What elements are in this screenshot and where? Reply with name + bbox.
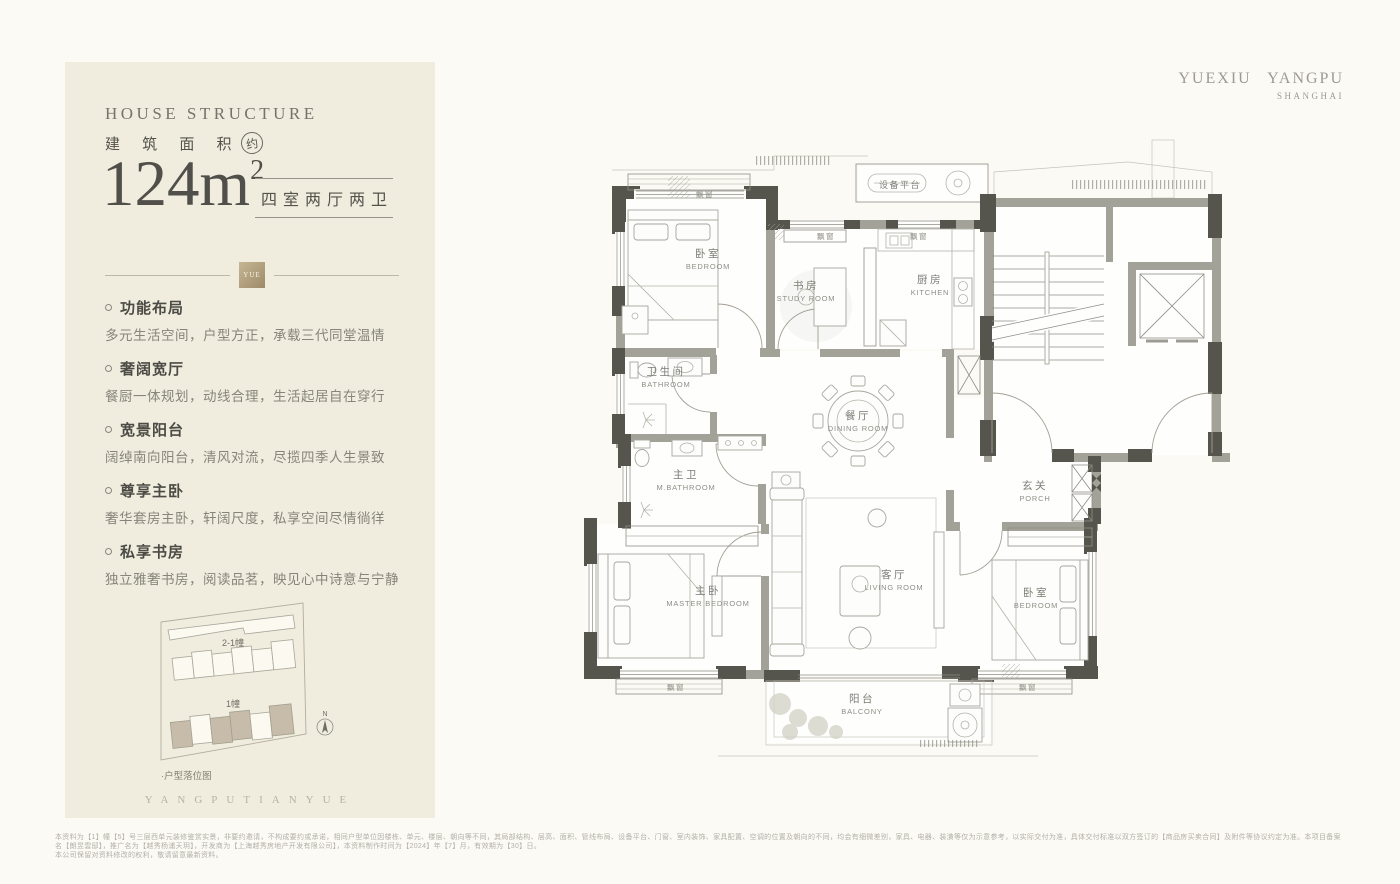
svg-text:PORCH: PORCH — [1019, 494, 1050, 503]
building-label-1: 1幢 — [226, 698, 240, 709]
feature-title: 功能布局 — [120, 300, 184, 317]
svg-text:BEDROOM: BEDROOM — [686, 262, 730, 271]
feature-desc: 独立雅奢书房，阅读品茗，映见心中诗意与宁静 — [105, 568, 415, 588]
building-row-1 — [170, 704, 295, 749]
svg-text:主卫: 主卫 — [673, 469, 699, 481]
svg-text:书房: 书房 — [793, 279, 819, 292]
svg-text:卧室: 卧室 — [695, 247, 721, 260]
brand-logo-line1: YUEXIU YANGPU — [1178, 70, 1344, 88]
floor-plan: 设备平台 — [568, 136, 1238, 786]
svg-text:卧室: 卧室 — [1023, 586, 1049, 599]
svg-text:BALCONY: BALCONY — [841, 707, 882, 716]
svg-text:DINING ROOM: DINING ROOM — [828, 424, 888, 433]
divider-line-left — [105, 275, 230, 276]
svg-text:MASTER BEDROOM: MASTER BEDROOM — [666, 599, 749, 608]
bullet-circle-icon — [105, 426, 112, 433]
bullet-circle-icon — [105, 487, 112, 494]
svg-text:厨房: 厨房 — [917, 273, 943, 286]
brand-logo: YUEXIU YANGPU SHANGHAI — [1178, 70, 1344, 101]
area-value: 124m2 — [102, 152, 264, 217]
svg-text:KITCHEN: KITCHEN — [911, 288, 950, 297]
svg-text:M.BATHROOM: M.BATHROOM — [656, 483, 715, 492]
feature-title: 奢阔宽厅 — [120, 361, 184, 378]
bullet-circle-icon — [105, 365, 112, 372]
svg-text:BATHROOM: BATHROOM — [641, 380, 690, 389]
feature-desc: 奢华套房主卧，轩阔尺度，私享空间尽情徜徉 — [105, 507, 415, 527]
equipment-platform-label: 设备平台 — [879, 179, 921, 190]
flyer-page: { "logo": { "line1": "YUEXIU YANGPU", "l… — [0, 0, 1400, 884]
feature-list: 功能布局 多元生活空间，户型方正，承载三代同堂温情 奢阔宽厅 餐厨一体规划，动线… — [105, 297, 415, 602]
feature-item: 私享书房 独立雅奢书房，阅读品茗，映见心中诗意与宁静 — [105, 541, 415, 588]
svg-text:卫生间: 卫生间 — [647, 365, 686, 378]
svg-text:玄关: 玄关 — [1022, 479, 1048, 492]
bay-window-label: 飘窗 — [817, 231, 835, 241]
feature-title: 私享书房 — [120, 544, 184, 561]
svg-text:客厅: 客厅 — [881, 568, 907, 581]
disclaimer-line1: 本资料为【1】幢【5】号三层西单元装修鉴赏实景，非要约邀请，不构成要约或承诺，相… — [55, 833, 1347, 851]
bay-window-label: 飘窗 — [667, 682, 685, 692]
bay-window-label: 飘窗 — [696, 189, 714, 199]
svg-text:主卧: 主卧 — [695, 584, 721, 597]
bullet-circle-icon — [105, 548, 112, 555]
disclaimer-line2: 本公司保留对资料修改的权利，敬请留意最新资料。 — [55, 851, 1347, 860]
svg-text:BEDROOM: BEDROOM — [1014, 601, 1058, 610]
svg-text:阳台: 阳台 — [849, 692, 875, 705]
feature-title: 宽景阳台 — [120, 422, 184, 439]
feature-desc: 餐厨一体规划，动线合理，生活起居自在穿行 — [105, 385, 415, 405]
feature-desc: 多元生活空间，户型方正，承载三代同堂温情 — [105, 324, 415, 344]
divider: YUE — [105, 262, 399, 288]
room-porch: 玄关 PORCH — [1019, 479, 1050, 503]
stair-core — [992, 252, 1104, 364]
disclaimer: 本资料为【1】幢【5】号三层西单元装修鉴赏实景，非要约邀请，不构成要约或承诺，相… — [55, 833, 1347, 860]
feature-title: 尊享主卧 — [120, 483, 184, 500]
feature-item: 奢阔宽厅 餐厨一体规划，动线合理，生活起居自在穿行 — [105, 358, 415, 405]
svg-text:STUDY ROOM: STUDY ROOM — [777, 294, 836, 303]
feature-item: 功能布局 多元生活空间，户型方正，承载三代同堂温情 — [105, 297, 415, 344]
info-panel: HOUSE STRUCTURE 建 筑 面 积 约 124m2 四室两厅两卫 Y… — [65, 62, 435, 818]
feature-desc: 阔绰南向阳台，清风对流，尽揽四季人生景致 — [105, 446, 415, 466]
bullet-circle-icon — [105, 304, 112, 311]
svg-text:LIVING ROOM: LIVING ROOM — [865, 583, 924, 592]
feature-item: 尊享主卧 奢华套房主卧，轩阔尺度，私享空间尽情徜徉 — [105, 480, 415, 527]
panel-watermark: YANGPUTIANYUE — [65, 794, 435, 806]
unit-type: 四室两厅两卫 — [255, 178, 393, 218]
panel-eyebrow: HOUSE STRUCTURE — [105, 104, 318, 124]
bay-window-label: 飘窗 — [910, 231, 928, 241]
feature-item: 宽景阳台 阔绰南向阳台，清风对流，尽揽四季人生景致 — [105, 419, 415, 466]
svg-text:N: N — [322, 711, 327, 718]
bay-window-label: 飘窗 — [1019, 682, 1037, 692]
brand-badge-icon: YUE — [239, 262, 265, 288]
bedroom1-furniture — [622, 210, 718, 334]
room-bathroom: 卫生间 BATHROOM — [641, 365, 690, 389]
divider-line-right — [274, 275, 399, 276]
site-plan-diagram: 2-1幢 1幢 N ·户型落位图 — [123, 588, 373, 788]
site-plan-caption: ·户型落位图 — [161, 770, 212, 782]
brand-logo-line2: SHANGHAI — [1178, 91, 1344, 101]
building-label-2-1: 2-1幢 — [222, 637, 244, 648]
compass-icon: N — [317, 711, 333, 735]
svg-text:餐厅: 餐厅 — [845, 409, 871, 422]
